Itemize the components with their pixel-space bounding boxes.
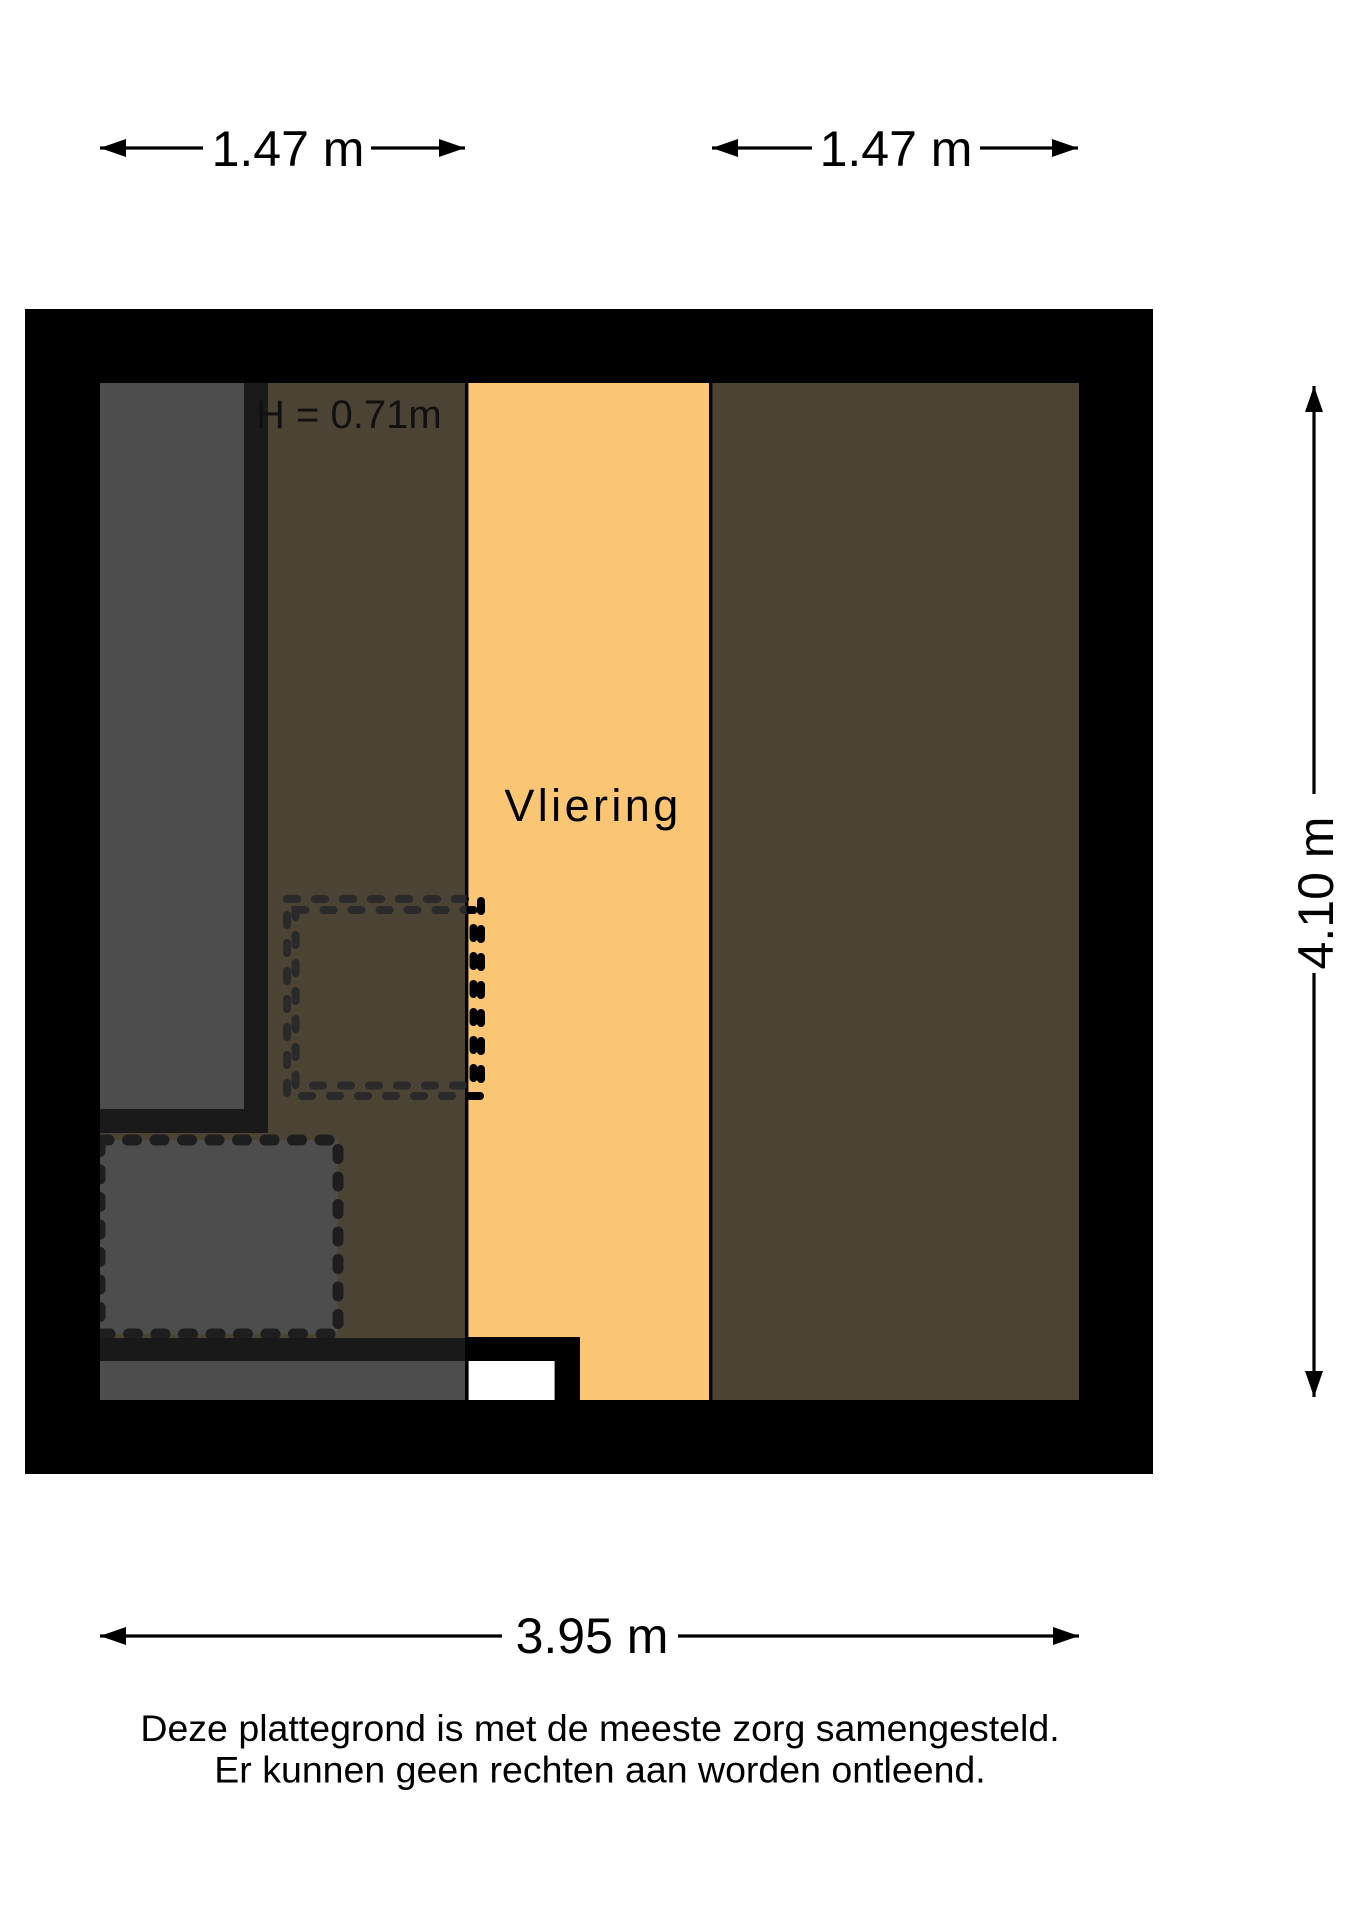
svg-text:3.95 m: 3.95 m — [516, 1608, 669, 1664]
svg-text:Er kunnen geen rechten aan wor: Er kunnen geen rechten aan worden ontlee… — [214, 1749, 985, 1791]
svg-text:Deze plattegrond is met de mee: Deze plattegrond is met de meeste zorg s… — [140, 1707, 1059, 1749]
svg-text:H = 0.71m: H = 0.71m — [256, 393, 442, 437]
svg-text:Vliering: Vliering — [504, 780, 681, 831]
svg-text:1.47 m: 1.47 m — [820, 121, 973, 177]
svg-text:4.10 m: 4.10 m — [1288, 817, 1344, 970]
svg-text:1.47 m: 1.47 m — [212, 121, 365, 177]
